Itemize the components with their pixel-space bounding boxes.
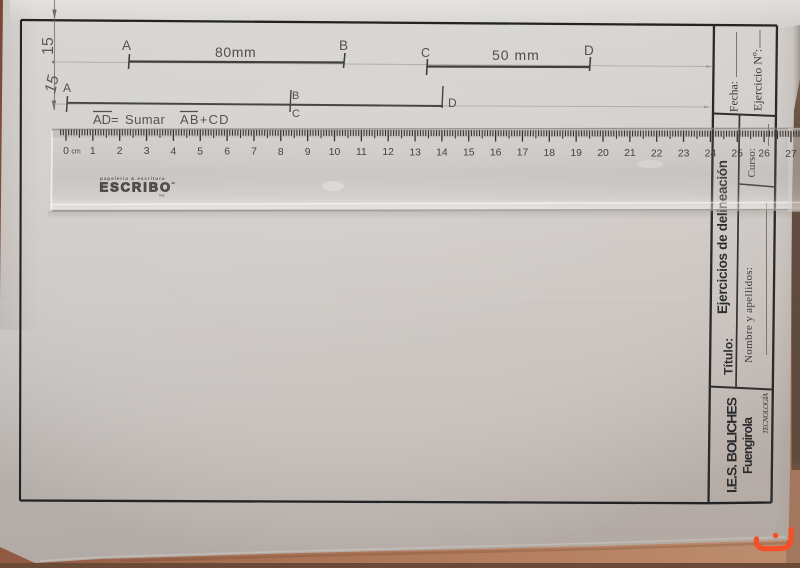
svg-text:line: line — [159, 194, 165, 198]
svg-text:27: 27 — [785, 149, 797, 160]
svg-text:I.E.S. BOLICHES: I.E.S. BOLICHES — [724, 397, 740, 493]
svg-text:50 mm: 50 mm — [492, 47, 540, 63]
svg-text:1: 1 — [90, 146, 96, 157]
svg-text:26: 26 — [758, 149, 770, 160]
svg-text:9: 9 — [305, 147, 311, 158]
svg-text:10: 10 — [329, 147, 341, 158]
svg-text:80mm: 80mm — [215, 44, 256, 60]
svg-text:20: 20 — [597, 148, 609, 159]
svg-text:19: 19 — [570, 148, 582, 159]
svg-text:14: 14 — [436, 147, 448, 158]
svg-text:B: B — [292, 90, 299, 102]
svg-text:15: 15 — [463, 148, 475, 159]
svg-text:Fuengirola: Fuengirola — [741, 416, 755, 474]
svg-text:AB+CD: AB+CD — [180, 112, 230, 127]
svg-text:0: 0 — [63, 146, 69, 157]
svg-text:25: 25 — [731, 149, 743, 160]
svg-text:17: 17 — [517, 148, 529, 159]
svg-text:Sumar: Sumar — [125, 112, 166, 127]
svg-text:16: 16 — [490, 148, 502, 159]
svg-text:22: 22 — [651, 148, 663, 159]
svg-text:6: 6 — [224, 147, 230, 158]
svg-text:Nombre y apellidos:: Nombre y apellidos: — [743, 267, 755, 363]
svg-text:21: 21 — [624, 148, 636, 159]
svg-text:15: 15 — [40, 37, 57, 55]
svg-text:7: 7 — [251, 147, 257, 158]
svg-text:13: 13 — [409, 147, 421, 158]
svg-text:Ejercicio Nº:: Ejercicio Nº: — [751, 49, 765, 111]
svg-text:A: A — [63, 81, 71, 95]
svg-text:4: 4 — [171, 146, 177, 157]
svg-text:Fecha:: Fecha: — [728, 81, 741, 112]
svg-text:23: 23 — [678, 148, 690, 159]
svg-text:cm: cm — [71, 148, 81, 155]
svg-text:TECNOLOGÍA: TECNOLOGÍA — [760, 393, 770, 434]
svg-text:2: 2 — [117, 146, 123, 157]
svg-text:D: D — [584, 43, 594, 58]
svg-text:C: C — [292, 108, 300, 120]
svg-text:ESCRIBO: ESCRIBO — [100, 180, 173, 195]
svg-text:18: 18 — [544, 148, 556, 159]
svg-text:B: B — [339, 38, 348, 53]
svg-text:C: C — [421, 46, 430, 60]
svg-text:12: 12 — [382, 147, 394, 158]
svg-text:✒: ✒ — [171, 181, 176, 187]
svg-text:15: 15 — [42, 74, 62, 95]
svg-text:Título:: Título: — [722, 338, 736, 375]
svg-text:AD=: AD= — [93, 112, 119, 127]
svg-text:D: D — [448, 96, 457, 110]
svg-text:A: A — [122, 38, 131, 53]
svg-text:11: 11 — [356, 147, 367, 158]
svg-text:3: 3 — [144, 146, 150, 157]
svg-text:8: 8 — [278, 147, 284, 158]
svg-text:5: 5 — [197, 147, 203, 158]
svg-text:24: 24 — [705, 149, 717, 160]
